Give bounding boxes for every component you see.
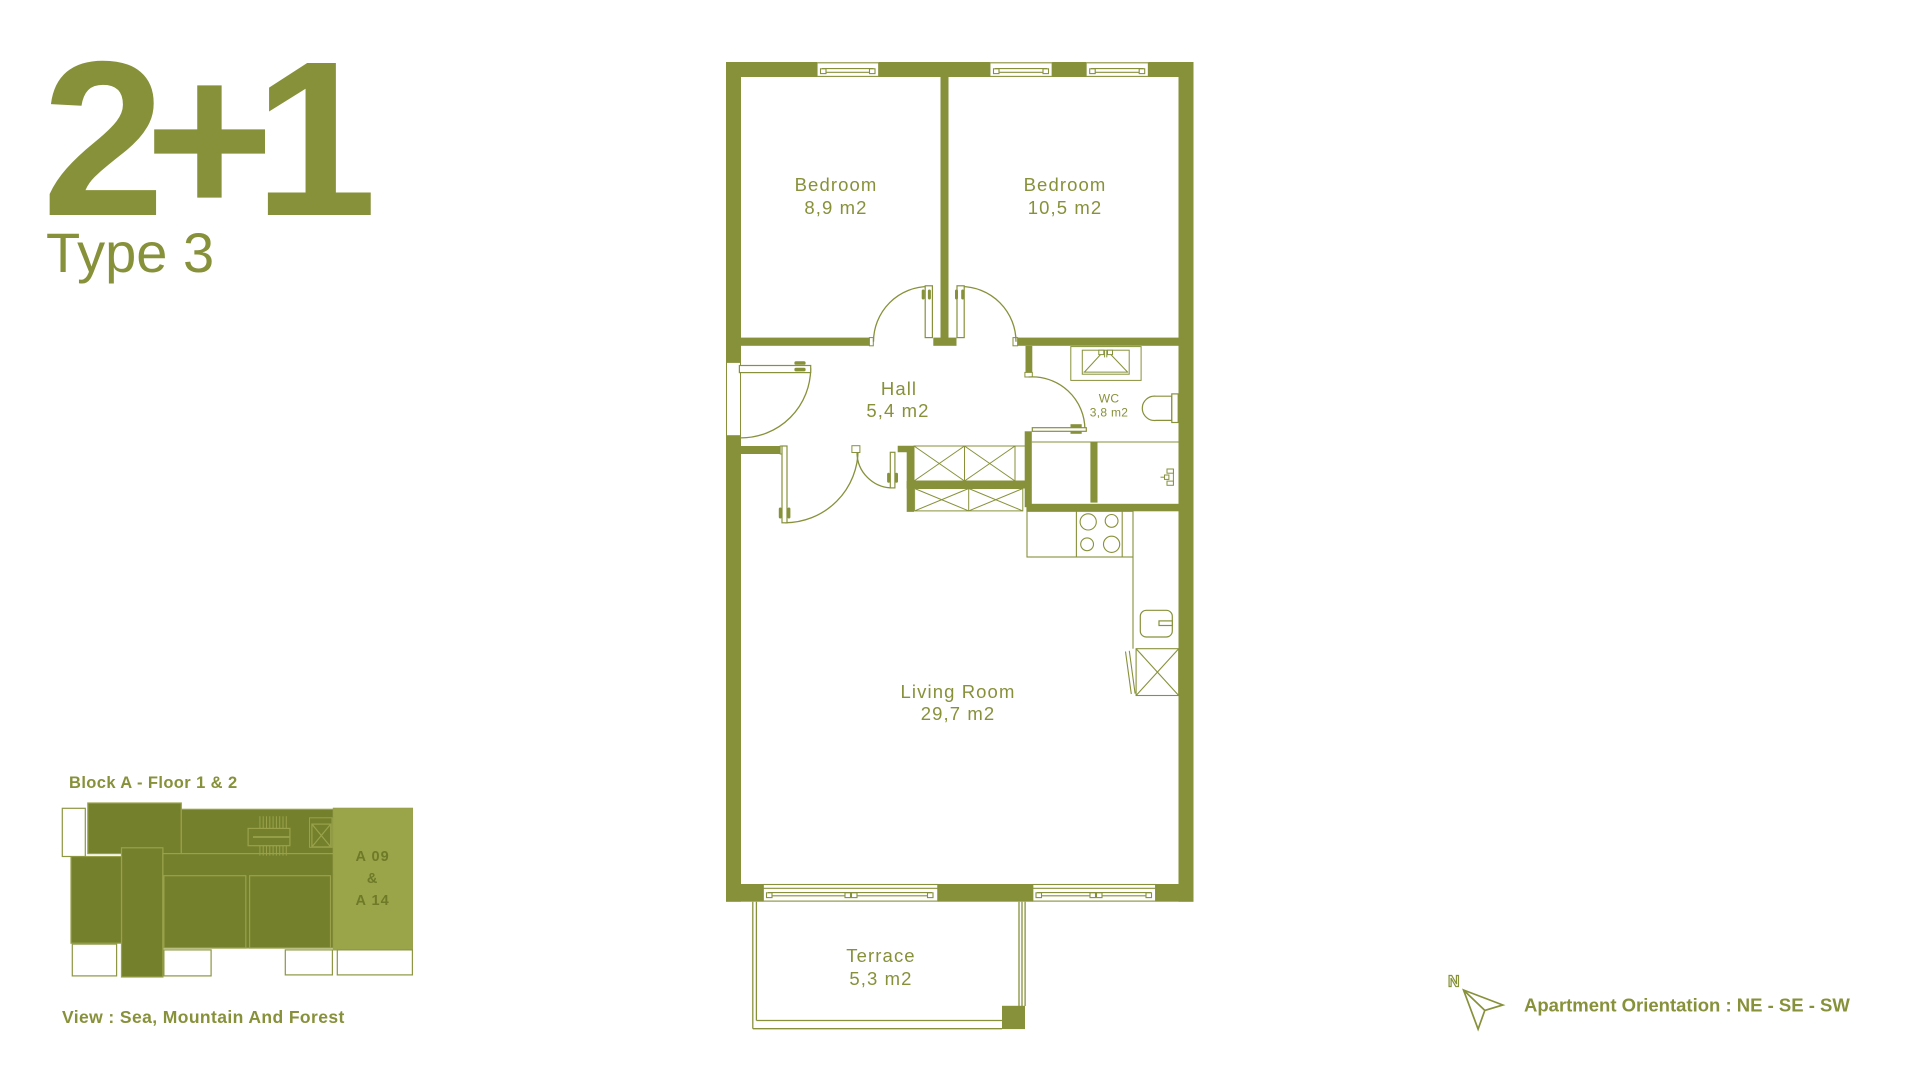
svg-text:Block A - Floor 1 & 2: Block A - Floor 1 & 2 <box>69 774 238 792</box>
svg-text:29,7 m2: 29,7 m2 <box>921 703 996 724</box>
svg-text:8,9 m2: 8,9 m2 <box>804 197 867 218</box>
svg-text:Apartment Orientation : NE - S: Apartment Orientation : NE - SE - SW <box>1524 995 1850 1016</box>
svg-text:5,4 m2: 5,4 m2 <box>866 400 929 421</box>
svg-text:10,5 m2: 10,5 m2 <box>1028 197 1103 218</box>
svg-text:5,3 m2: 5,3 m2 <box>849 968 912 989</box>
svg-text:Bedroom: Bedroom <box>1024 174 1107 195</box>
svg-text:3,8 m2: 3,8 m2 <box>1090 406 1129 420</box>
svg-text:A 09: A 09 <box>356 849 390 865</box>
svg-text:Type 3: Type 3 <box>46 221 214 284</box>
svg-text:Terrace: Terrace <box>846 945 915 966</box>
svg-text:Living Room: Living Room <box>901 681 1016 702</box>
svg-text:&: & <box>367 871 378 887</box>
svg-text:N: N <box>1448 974 1460 991</box>
svg-text:View : Sea, Mountain And Fores: View : Sea, Mountain And Forest <box>62 1007 345 1027</box>
svg-text:Hall: Hall <box>881 378 917 399</box>
svg-text:Bedroom: Bedroom <box>795 174 878 195</box>
svg-text:WC: WC <box>1099 392 1120 406</box>
svg-text:A 14: A 14 <box>356 893 390 909</box>
